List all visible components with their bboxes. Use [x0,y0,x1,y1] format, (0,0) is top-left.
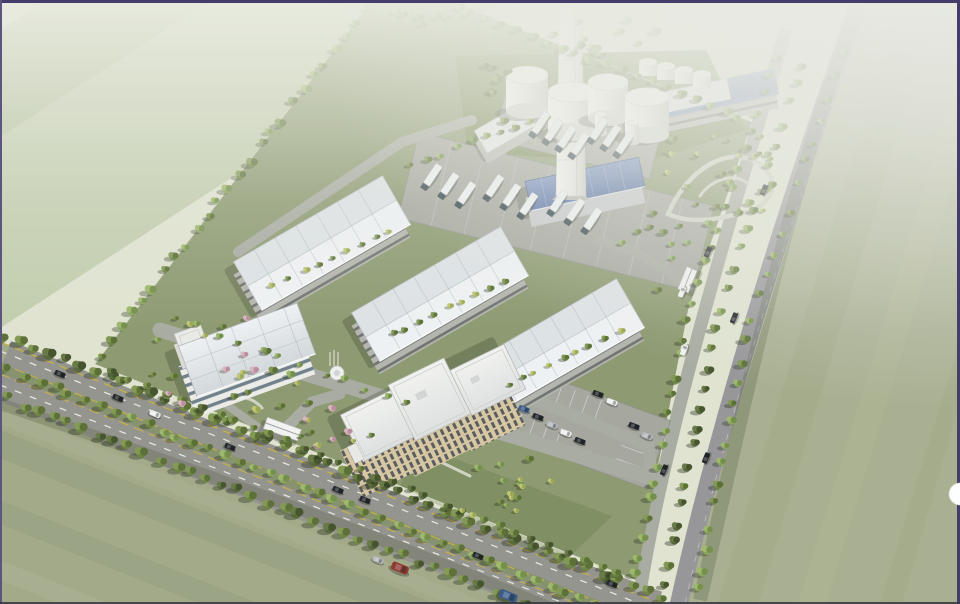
site-aerial-rendering [0,0,960,604]
rendering-stage [0,0,960,604]
haze-overlay-corner [0,0,960,604]
